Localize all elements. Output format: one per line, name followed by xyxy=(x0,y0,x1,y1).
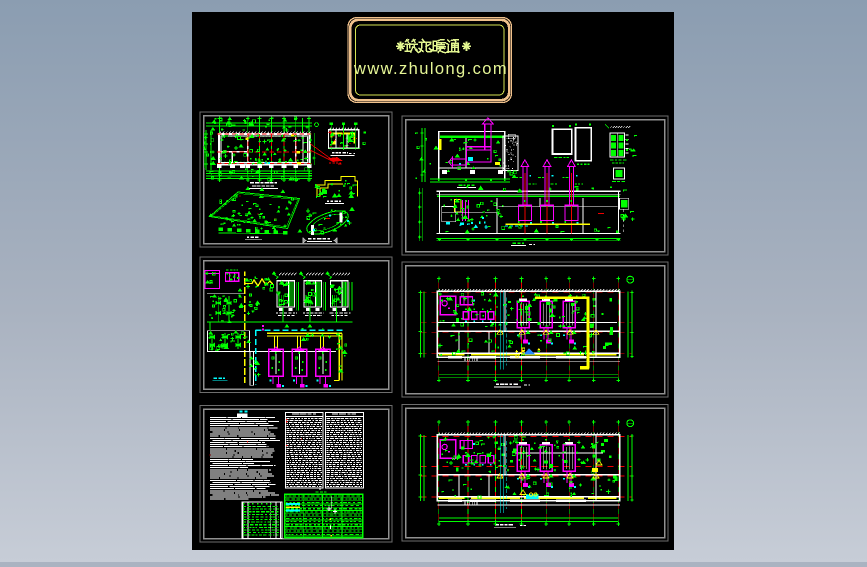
svg-text:www.zhulong.com: www.zhulong.com xyxy=(353,60,508,78)
